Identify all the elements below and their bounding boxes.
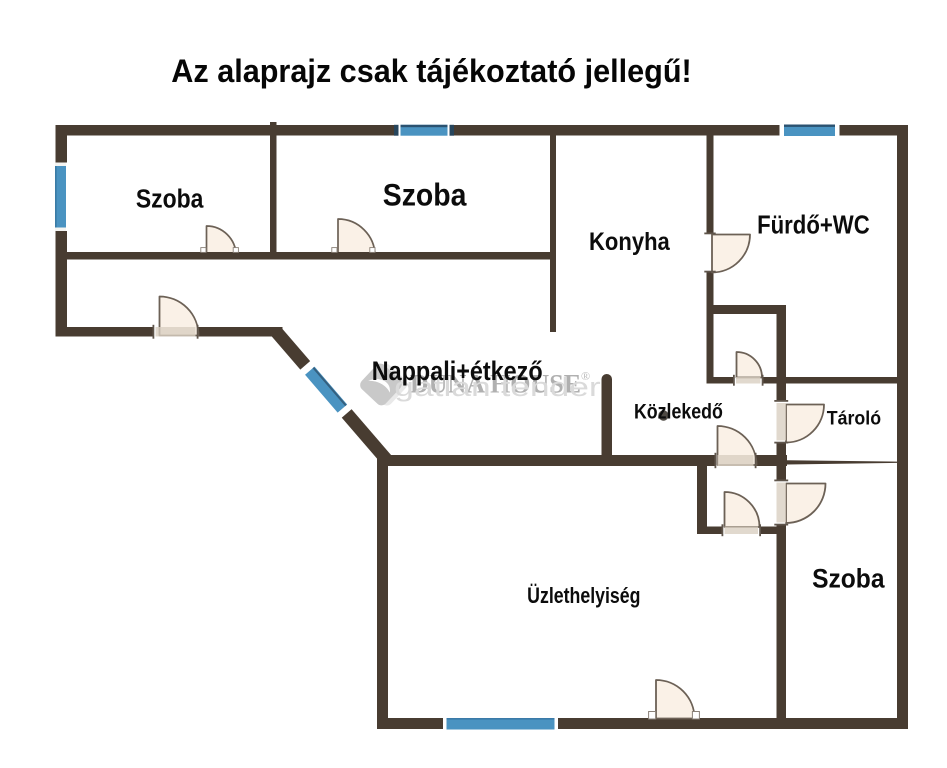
svg-text:Szoba: Szoba bbox=[136, 186, 204, 214]
svg-text:Szoba: Szoba bbox=[812, 565, 885, 594]
svg-text:Közlekedő: Közlekedő bbox=[634, 400, 723, 424]
svg-text:Üzlethelyiség: Üzlethelyiség bbox=[527, 583, 640, 609]
svg-text:Szoba: Szoba bbox=[383, 178, 467, 213]
svg-text:Fürdő+WC: Fürdő+WC bbox=[757, 211, 870, 240]
svg-text:Konyha: Konyha bbox=[589, 228, 671, 256]
svg-text:Tároló: Tároló bbox=[827, 407, 881, 429]
svg-text:Az alaprajz csak tájékoztató j: Az alaprajz csak tájékoztató jellegű! bbox=[171, 53, 691, 89]
svg-text:Nappali+étkező: Nappali+étkező bbox=[372, 357, 543, 387]
